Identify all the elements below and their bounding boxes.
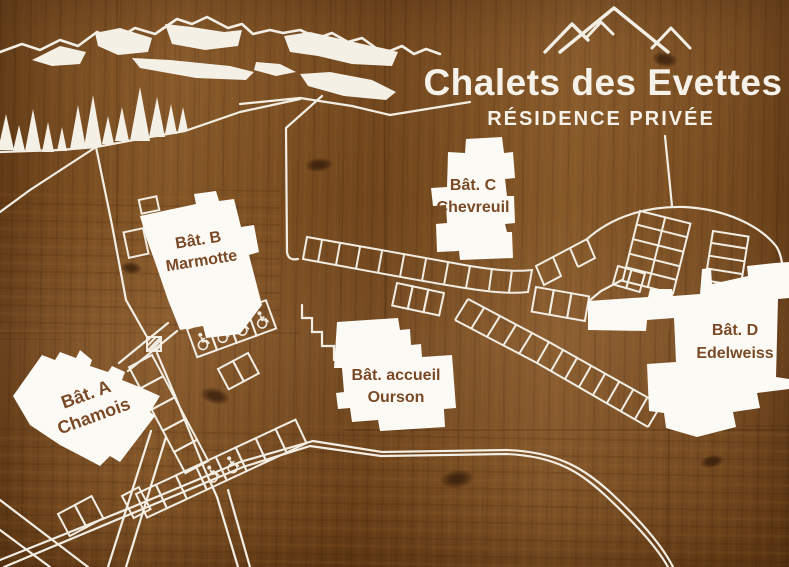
building-a: Bât. A Chamois xyxy=(13,350,160,466)
parking-roadside-southwest2 xyxy=(122,487,151,518)
building-c-label-line1: Bât. C xyxy=(450,177,497,194)
building-accueil-label-line2: Ourson xyxy=(368,389,425,406)
building-d-label-line2: Edelweiss xyxy=(696,345,773,362)
parking-grid-northeast xyxy=(623,211,691,293)
mountain-ridge-silhouette xyxy=(0,17,470,115)
wooden-site-map-sign: Chalets des Evettes RÉSIDENCE PRIVÉE xyxy=(0,0,789,567)
parking-cluster-above-accueil xyxy=(392,283,444,315)
accessible-parking-row-south xyxy=(136,420,306,518)
building-b: Bât. B Marmotte xyxy=(124,191,262,338)
site-map-artwork: Chalets des Evettes RÉSIDENCE PRIVÉE xyxy=(0,0,789,567)
sign-title: Chalets des Evettes xyxy=(423,62,782,103)
building-d-label-line1: Bât. D xyxy=(712,322,758,339)
parking-roadside-southwest xyxy=(58,496,103,536)
parking-cluster-mid-east xyxy=(532,287,590,321)
building-c-label-line2: Chevreuil xyxy=(437,199,510,216)
mountain-peaks-icon xyxy=(545,8,690,52)
buildings: Bât. B Marmotte Bât. C Chevreuil Bât. A … xyxy=(13,137,789,466)
parking-pair-center-west xyxy=(218,353,259,389)
building-c: Bât. C Chevreuil xyxy=(431,137,515,260)
building-accueil-label-line1: Bât. accueil xyxy=(352,367,441,384)
resort-logo: Chalets des Evettes RÉSIDENCE PRIVÉE xyxy=(423,8,782,130)
building-accueil: Bât. accueil Ourson xyxy=(334,318,456,431)
fir-trees xyxy=(0,87,300,152)
sign-subtitle: RÉSIDENCE PRIVÉE xyxy=(487,107,715,130)
